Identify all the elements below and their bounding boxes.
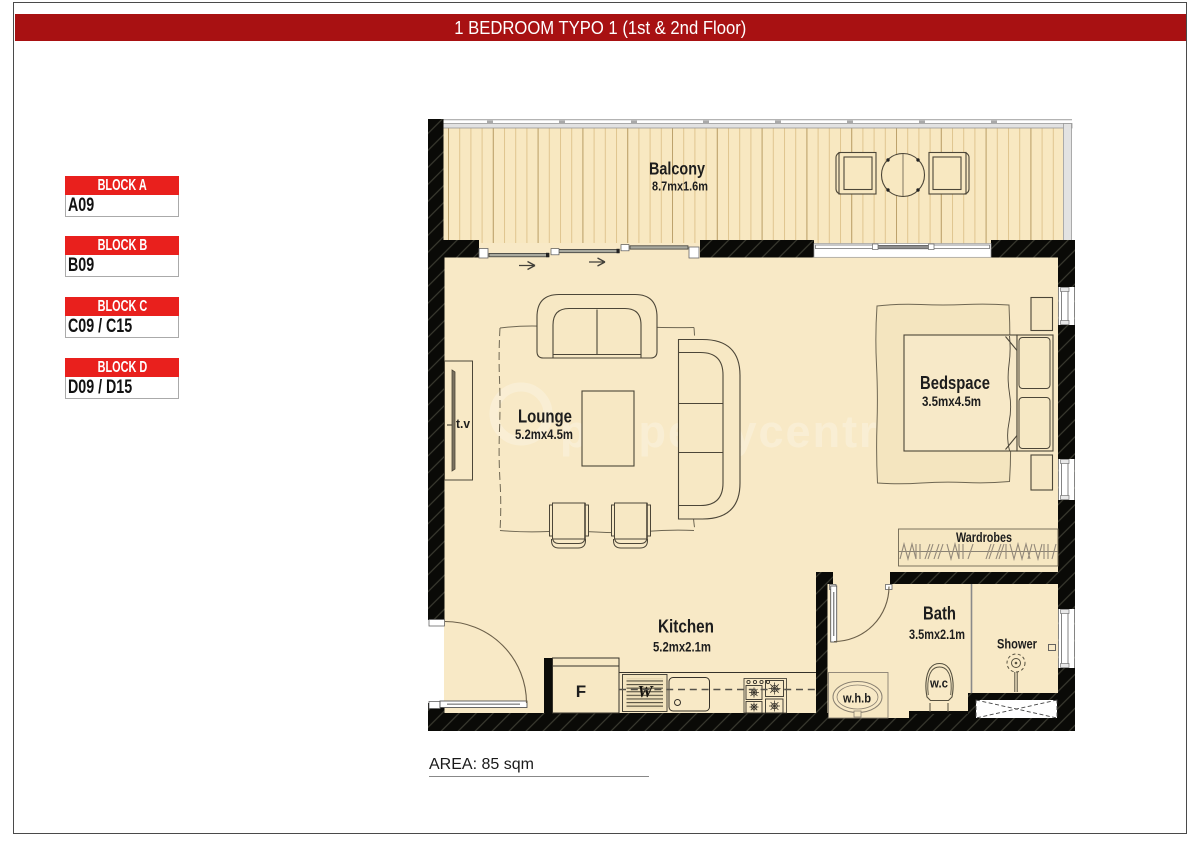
svg-text:F: F xyxy=(576,682,586,701)
svg-text:W: W xyxy=(637,682,654,701)
svg-text:Kitchen: Kitchen xyxy=(658,617,714,637)
svg-text:Shower: Shower xyxy=(997,637,1038,652)
svg-text:Bedspace: Bedspace xyxy=(920,373,990,393)
svg-text:8.7mx1.6m: 8.7mx1.6m xyxy=(652,179,708,194)
svg-text:3.5mx4.5m: 3.5mx4.5m xyxy=(922,394,981,409)
svg-text:Balcony: Balcony xyxy=(649,159,705,179)
svg-text:Lounge: Lounge xyxy=(518,406,572,427)
svg-text:5.2mx4.5m: 5.2mx4.5m xyxy=(515,427,573,442)
svg-text:5.2mx2.1m: 5.2mx2.1m xyxy=(653,640,711,655)
svg-text:Bath: Bath xyxy=(923,604,956,624)
svg-text:t.v: t.v xyxy=(456,416,471,431)
svg-text:Wardrobes: Wardrobes xyxy=(956,530,1012,545)
svg-text:w.c: w.c xyxy=(929,676,948,691)
svg-text:w.h.b: w.h.b xyxy=(842,691,871,706)
svg-text:3.5mx2.1m: 3.5mx2.1m xyxy=(909,627,965,642)
